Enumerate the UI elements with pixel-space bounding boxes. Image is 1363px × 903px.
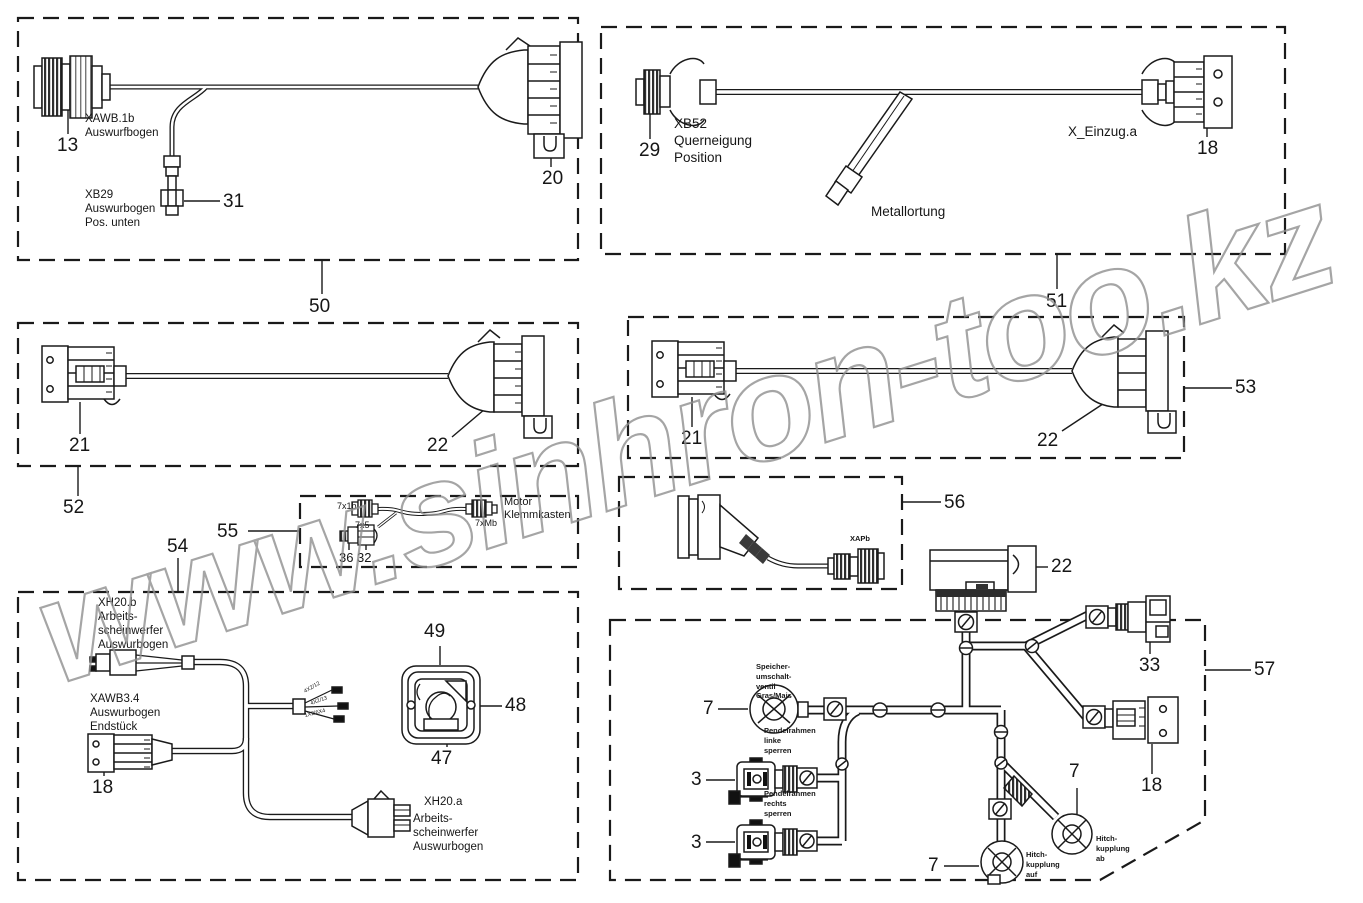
plug-label-7x5: 7x5	[355, 521, 370, 530]
dest-label-motor-klemmkasten: Motor Klemmkasten	[504, 496, 571, 522]
plug-connector-22-icon	[448, 330, 552, 438]
part-ref-22a: 22	[427, 436, 448, 455]
connector-label-xh20a-name: Arbeits- scheinwerfer Auswurbogen	[413, 812, 483, 854]
socket-connector-21-icon	[42, 346, 126, 405]
plug-connector-22b-icon	[1072, 325, 1176, 433]
part-ref-7c: 7	[1069, 762, 1080, 781]
part-ref-48: 48	[505, 696, 526, 715]
part-ref-32: 32	[357, 551, 371, 564]
part-ref-21b: 21	[681, 429, 702, 448]
connector-label-xb29: XB29 Auswurbogen Pos. unten	[85, 188, 155, 230]
harness-54	[88, 650, 480, 837]
label-hitch-ab: Hitch- kupplung ab	[1096, 834, 1130, 863]
part-ref-22c: 22	[1051, 557, 1072, 576]
multipin-connector-22c-icon	[930, 546, 1036, 611]
wire-branch-icon	[293, 687, 348, 722]
part-ref-18b: 18	[92, 778, 113, 797]
hitch-auf-connector-icon	[981, 841, 1023, 884]
connector-33-icon	[1086, 596, 1170, 642]
figure-ref-53: 53	[1235, 378, 1256, 397]
valve-label-linke: Pendelrahmen linke sperren	[764, 726, 816, 755]
connector-label-x-einzug: X_Einzug.a	[1068, 124, 1137, 141]
plug-connector-20-icon	[478, 38, 582, 158]
flat-connector-icon	[678, 495, 770, 564]
connector-XH20b-icon	[90, 650, 194, 675]
connector-label-xawb34: XAWB3.4 Auswurbogen Endstück	[90, 692, 160, 734]
harness-57-tubes	[807, 611, 1088, 846]
figure-ref-50: 50	[309, 297, 330, 316]
plug-connector-18-icon	[1142, 56, 1232, 128]
part-ref-29: 29	[639, 141, 660, 160]
parts-diagram-page: 50 XAWB.1b Auswurfbogen 13 XB29 Auswurbo…	[0, 0, 1363, 903]
plug-label-xapb: XAPb	[850, 534, 870, 544]
plug-7xMb-icon	[466, 500, 497, 517]
part-ref-18a: 18	[1197, 139, 1218, 158]
figure-ref-52: 52	[63, 498, 84, 517]
part-ref-7a: 7	[703, 699, 714, 718]
part-ref-47: 47	[431, 749, 452, 768]
valve-rechts-icon	[729, 820, 817, 867]
cable-50	[110, 87, 478, 158]
label-hitch-auf: Hitch- kupplung auf	[1026, 850, 1060, 879]
probe-label-metallortung: Metallortung	[871, 204, 945, 221]
plug-label-7x1b: 7x1b	[337, 502, 357, 511]
figure-ref-54: 54	[167, 537, 188, 556]
connector-XAWB34-18-icon	[88, 734, 172, 772]
connector-label-xawb1b: XAWB.1b Auswurfbogen	[85, 112, 159, 140]
part-ref-3a: 3	[691, 770, 702, 789]
figure-ref-56: 56	[944, 493, 965, 512]
part-ref-22b: 22	[1037, 431, 1058, 450]
part-ref-21a: 21	[69, 436, 90, 455]
part-ref-33: 33	[1139, 656, 1160, 675]
harness-54-tubes	[170, 662, 352, 817]
part-ref-49: 49	[424, 622, 445, 641]
figure-ref-57: 57	[1254, 660, 1275, 679]
connector-label-xb52: XB52 Querneigung Position	[674, 116, 752, 167]
socket-connector-21b-icon	[652, 341, 736, 400]
part-ref-20: 20	[542, 169, 563, 188]
connector-18c-icon	[1083, 697, 1178, 743]
valve-label-speicher: Speicher- umschalt- ventil Gras/Mais	[756, 662, 792, 701]
connector-label-xh20b: XH20.b Arbeits- scheinwerfer Auswurbogen	[98, 596, 168, 652]
hitch-ab-connector-icon	[1052, 814, 1092, 854]
round-connector-13-icon	[34, 56, 110, 118]
inline-connector-31-icon	[161, 156, 183, 215]
part-ref-18c: 18	[1141, 776, 1162, 795]
round-plug-XAPb-icon	[828, 549, 884, 583]
part-ref-36: 36	[339, 551, 353, 564]
part-ref-13: 13	[57, 136, 78, 155]
part-ref-7b: 7	[928, 856, 939, 875]
cable-assembly-52	[42, 330, 552, 438]
part-ref-3b: 3	[691, 833, 702, 852]
plug-label-7xMb: 7xMb	[475, 519, 497, 528]
figure-ref-51: 51	[1046, 292, 1067, 311]
connector-XH20a-icon	[352, 791, 410, 837]
part-ref-31: 31	[223, 192, 244, 211]
figure-ref-55: 55	[217, 522, 238, 541]
valve-label-rechts: Pendelrahmen rechts sperren	[764, 789, 816, 818]
metal-detector-probe-icon	[826, 92, 912, 205]
cable-assembly-53	[652, 325, 1176, 433]
lamp-module-47-48-49-icon	[402, 666, 480, 744]
connector-label-xh20a-code: XH20.a	[424, 795, 462, 809]
